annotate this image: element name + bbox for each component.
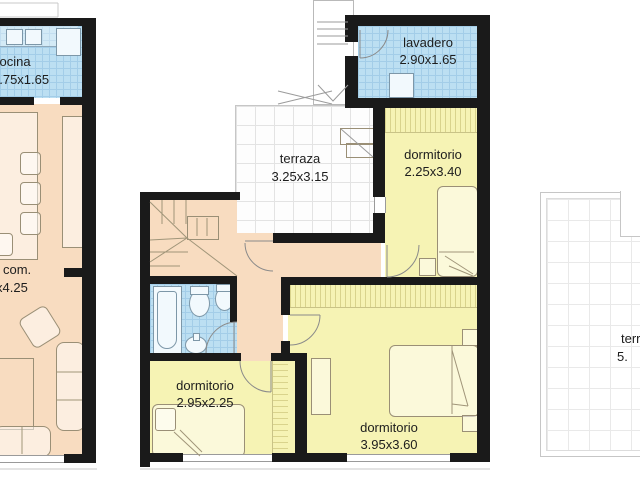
room-dims-dormitorio3: 3.95x3.60 (334, 436, 444, 453)
wall (140, 453, 183, 462)
window (183, 454, 272, 462)
room-label-terraza-right: terraza (621, 330, 640, 347)
room-label-lavadero: lavadero (378, 34, 478, 51)
wall (450, 453, 490, 462)
wall (150, 276, 237, 284)
bed-single (437, 186, 478, 277)
wall (345, 15, 490, 26)
wall (230, 284, 237, 322)
window (374, 197, 386, 213)
room-label-terraza: terraza (245, 150, 355, 167)
room-label-dormitorio2: dormitorio (151, 377, 259, 394)
window (347, 454, 450, 462)
dresser (311, 358, 331, 415)
wall (140, 192, 150, 467)
room-dims-terraza: 3.25x3.15 (245, 168, 355, 185)
room-dims-dormitorio2: 2.95x2.25 (151, 394, 259, 411)
room-dims-dormitorio1: 2.25x3.40 (378, 163, 488, 180)
bed-double (389, 345, 479, 417)
closet-hatch (290, 285, 477, 308)
bathtub-basin (157, 291, 177, 349)
wall (281, 285, 290, 315)
nightstand (419, 258, 436, 276)
wall (273, 233, 373, 243)
room-dims-lavadero: 2.90x1.65 (378, 51, 478, 68)
wall (281, 277, 477, 285)
wall (140, 353, 241, 361)
washing-machine (389, 73, 414, 98)
wall (272, 453, 347, 462)
room-dims-terraza-right: 5. (617, 348, 628, 365)
hallway-floor (283, 243, 381, 277)
toilet-tank (190, 286, 209, 295)
stair-flight-inset (187, 216, 219, 240)
closet-hatch (385, 106, 477, 133)
wall (281, 341, 290, 361)
floor-plan-canvas: cocina 1.75x1.65 com. x4.25 (0, 0, 640, 480)
pillow (155, 408, 176, 431)
room-label-dormitorio1: dormitorio (378, 146, 488, 163)
wall (373, 213, 385, 243)
wall (295, 361, 307, 455)
wall (140, 192, 240, 200)
wall (477, 15, 490, 462)
right-plan: terraza 5. (538, 0, 640, 480)
terrace-notch (620, 191, 640, 237)
wall (345, 98, 477, 108)
room-label-dormitorio3: dormitorio (334, 419, 444, 436)
hallway-floor (237, 233, 283, 361)
wall (345, 56, 358, 100)
wall (345, 26, 358, 42)
sink-tap (193, 333, 200, 341)
